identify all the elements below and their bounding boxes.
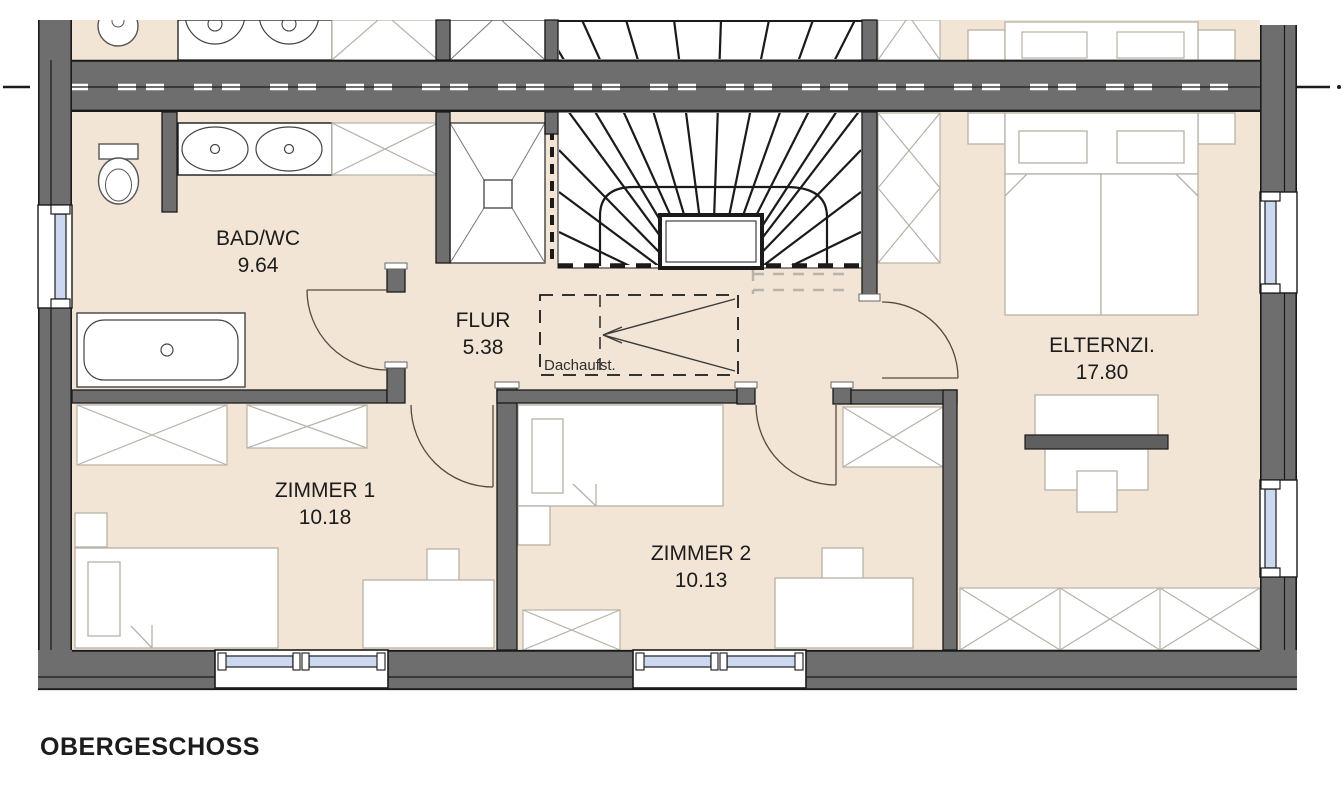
section-band bbox=[38, 60, 1297, 112]
label-dachaufstieg: Dachaufst. bbox=[544, 357, 616, 374]
wall-stub-shower-left-upper bbox=[436, 20, 450, 60]
wardrobe-elternzimmer-corner bbox=[843, 407, 943, 467]
wall-stub-toilet-niche bbox=[162, 112, 177, 212]
wall-zimmer2-door-jamb-left bbox=[737, 388, 755, 404]
wall-stub-shower-left bbox=[436, 112, 450, 263]
jamb-cap bbox=[385, 362, 407, 368]
label-zimmer2: ZIMMER 2 bbox=[651, 542, 751, 565]
wall-bad-door-jamb-top bbox=[387, 268, 405, 292]
wall-left-exterior bbox=[38, 20, 72, 690]
bathtub bbox=[77, 313, 245, 387]
area-zimmer1: 10.18 bbox=[299, 506, 352, 529]
wall-bad-zimmer1 bbox=[72, 390, 387, 403]
window-right-lower bbox=[1260, 480, 1297, 577]
floor-title: OBERGESCHOSS bbox=[40, 733, 260, 761]
jamb-cap bbox=[831, 382, 853, 388]
label-bad-wc: BAD/WC bbox=[216, 227, 300, 250]
wall-bad-door-jamb-bottom bbox=[387, 368, 405, 403]
wall-zimmer2-elternzimmer-top bbox=[851, 390, 957, 404]
jamb-cap bbox=[495, 382, 519, 388]
label-flur: FLUR bbox=[456, 309, 511, 332]
shower bbox=[450, 123, 545, 263]
double-sink-counter bbox=[178, 123, 332, 175]
wall-zimmer1-zimmer2 bbox=[497, 388, 517, 650]
wall-stair-right-upper bbox=[862, 20, 877, 60]
wall-right-exterior bbox=[1260, 25, 1297, 690]
jamb-cap bbox=[735, 382, 757, 388]
area-bad-wc: 9.64 bbox=[238, 254, 279, 277]
jamb-cap bbox=[385, 263, 407, 269]
wardrobe-elternzimmer-column bbox=[878, 113, 940, 263]
wardrobe-bathroom bbox=[332, 123, 438, 175]
window-bottom-zimmer1 bbox=[215, 650, 388, 688]
wall-zimmer2-elternzimmer bbox=[943, 390, 957, 650]
wall-stub-stair-left-upper bbox=[545, 20, 558, 60]
area-flur: 5.38 bbox=[463, 336, 504, 359]
wardrobe-zimmer1-a bbox=[77, 405, 227, 465]
wall-zimmer2-door-jamb-right bbox=[833, 388, 851, 404]
jamb-cap bbox=[859, 294, 880, 301]
wall-stub-stair-left bbox=[545, 112, 558, 134]
floor-plan-drawing: BAD/WC 9.64 FLUR 5.38 ZIMMER 1 10.18 ZIM… bbox=[0, 0, 1343, 785]
wall-flur-zimmer2 bbox=[497, 390, 737, 403]
label-elternzimmer: ELTERNZI. bbox=[1049, 334, 1155, 357]
label-zimmer1: ZIMMER 1 bbox=[275, 479, 375, 502]
toilet bbox=[99, 144, 139, 204]
window-right-upper bbox=[1260, 192, 1297, 293]
floor-plan-page: BAD/WC 9.64 FLUR 5.38 ZIMMER 1 10.18 ZIM… bbox=[0, 0, 1343, 785]
window-bottom-zimmer2 bbox=[633, 650, 806, 688]
desk-elternzimmer-bar bbox=[1025, 435, 1168, 449]
area-elternzimmer: 17.80 bbox=[1076, 361, 1129, 384]
wardrobe-zimmer2 bbox=[523, 610, 620, 650]
window-left-bad bbox=[38, 205, 72, 308]
wall-stair-right bbox=[862, 112, 877, 297]
bed-elternzimmer bbox=[968, 113, 1235, 315]
wardrobe-elternzimmer-long bbox=[960, 588, 1260, 650]
wardrobe-zimmer1-b bbox=[247, 405, 367, 448]
area-zimmer2: 10.13 bbox=[675, 569, 728, 592]
